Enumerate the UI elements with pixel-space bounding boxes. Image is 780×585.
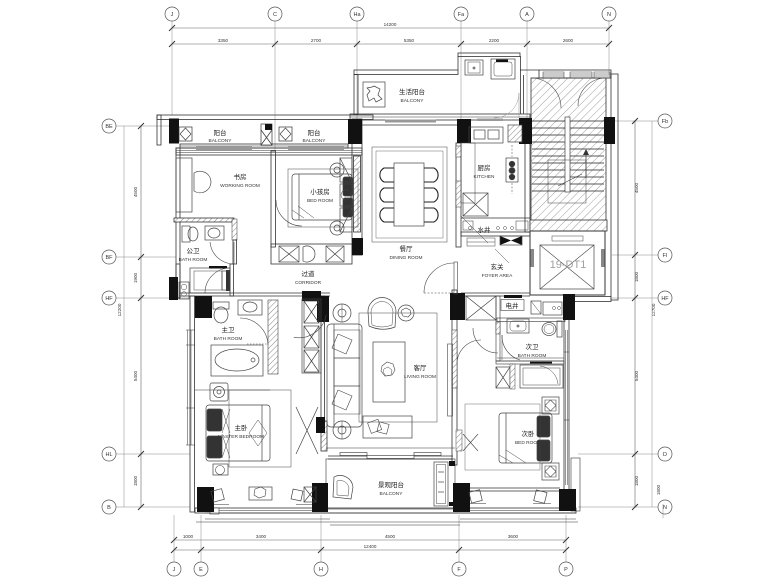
svg-text:WORKING ROOM: WORKING ROOM [220, 183, 260, 189]
svg-text:2200: 2200 [489, 38, 500, 43]
svg-text:1900: 1900 [133, 272, 138, 283]
svg-text:主卫: 主卫 [222, 325, 236, 334]
svg-text:次卧: 次卧 [522, 429, 536, 438]
svg-text:14200: 14200 [384, 22, 397, 27]
svg-text:电井: 电井 [506, 301, 520, 310]
svg-text:主卧: 主卧 [235, 423, 249, 432]
svg-text:A: A [525, 12, 529, 18]
svg-text:FOYER AREA: FOYER AREA [482, 273, 513, 279]
svg-text:N: N [663, 505, 667, 511]
svg-text:HF: HF [661, 296, 669, 302]
svg-text:3400: 3400 [256, 534, 267, 539]
svg-text:过道: 过道 [302, 269, 316, 278]
svg-text:BED ROOM: BED ROOM [515, 440, 541, 446]
svg-text:HL: HL [105, 452, 112, 458]
svg-text:4500: 4500 [385, 534, 396, 539]
svg-text:次卫: 次卫 [526, 342, 540, 351]
svg-text:阳台: 阳台 [308, 128, 321, 137]
svg-text:H: H [319, 567, 323, 573]
svg-text:Ha: Ha [353, 12, 361, 18]
svg-text:Fb: Fb [662, 119, 668, 125]
svg-text:5400: 5400 [634, 370, 639, 381]
svg-text:E: E [199, 567, 203, 573]
svg-text:2700: 2700 [311, 38, 322, 43]
svg-text:BALCONY: BALCONY [209, 138, 233, 144]
svg-text:C: C [273, 12, 277, 18]
svg-text:BALCONY: BALCONY [303, 138, 327, 144]
svg-text:生活阳台: 生活阳台 [399, 87, 425, 96]
svg-text:CORRIDOR: CORRIDOR [295, 280, 322, 286]
svg-text:小孩房: 小孩房 [310, 187, 330, 196]
svg-text:LIVING ROOM: LIVING ROOM [404, 374, 436, 380]
svg-text:KITCHEN: KITCHEN [473, 174, 495, 180]
svg-text:阳台: 阳台 [214, 128, 227, 137]
svg-text:3600: 3600 [508, 534, 519, 539]
svg-text:BF: BF [105, 255, 113, 261]
svg-text:12400: 12400 [364, 544, 377, 549]
svg-text:公卫: 公卫 [187, 247, 201, 255]
svg-text:Fa: Fa [458, 12, 465, 18]
svg-text:景观阳台: 景观阳台 [378, 480, 404, 489]
svg-text:BE: BE [105, 124, 113, 130]
svg-text:N: N [607, 12, 611, 18]
svg-text:3350: 3350 [218, 38, 229, 43]
svg-text:2600: 2600 [563, 38, 574, 43]
svg-text:FI: FI [663, 253, 668, 259]
svg-text:B: B [107, 505, 111, 511]
svg-text:厨房: 厨房 [478, 163, 491, 172]
svg-text:客厅: 客厅 [414, 363, 428, 372]
svg-text:玄关: 玄关 [491, 262, 505, 271]
svg-text:BATH ROOM: BATH ROOM [179, 257, 208, 263]
svg-text:BALCONY: BALCONY [401, 98, 425, 104]
svg-text:BATH ROOM: BATH ROOM [518, 353, 547, 359]
svg-text:BALCONY: BALCONY [380, 491, 404, 497]
svg-text:12200: 12200 [117, 303, 122, 316]
svg-text:P: P [564, 567, 568, 573]
svg-text:书房: 书房 [234, 172, 247, 181]
svg-text:MASTER BEDROOM: MASTER BEDROOM [218, 434, 264, 440]
svg-text:19-DT1: 19-DT1 [550, 259, 587, 271]
svg-text:BED ROOM: BED ROOM [307, 198, 333, 204]
svg-text:J: J [171, 12, 174, 18]
svg-text:4500: 4500 [634, 182, 639, 193]
svg-text:水井: 水井 [478, 225, 492, 234]
svg-text:1800: 1800 [656, 484, 661, 495]
svg-text:餐厅: 餐厅 [400, 244, 414, 253]
svg-text:12700: 12700 [651, 303, 656, 316]
svg-text:4500: 4500 [133, 186, 138, 197]
svg-text:D: D [663, 452, 667, 458]
svg-text:DINING ROOM: DINING ROOM [389, 255, 422, 261]
svg-text:5400: 5400 [133, 370, 138, 381]
svg-text:HF: HF [105, 296, 113, 302]
svg-text:1800: 1800 [634, 475, 639, 486]
svg-text:BATH ROOM: BATH ROOM [214, 336, 243, 342]
svg-text:1800: 1800 [133, 475, 138, 486]
svg-text:5350: 5350 [404, 38, 415, 43]
svg-text:J: J [173, 567, 176, 573]
svg-text:1800: 1800 [634, 271, 639, 282]
svg-text:1000: 1000 [183, 534, 194, 539]
